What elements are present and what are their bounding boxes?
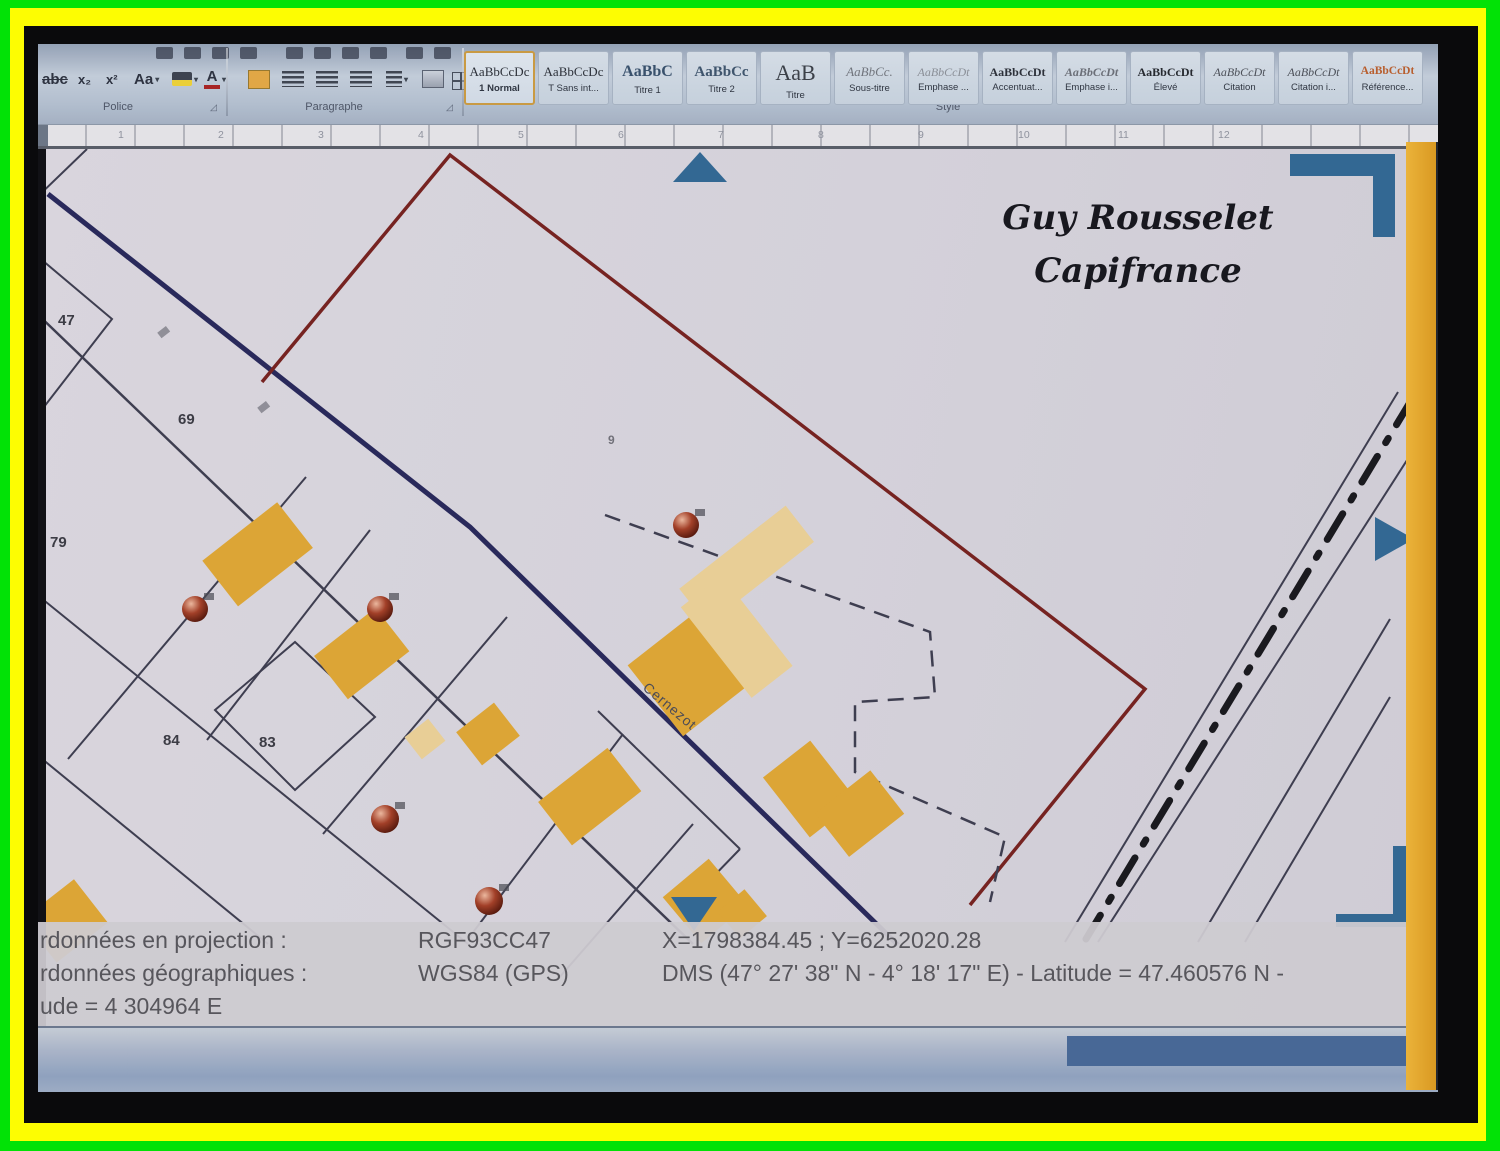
map-pin xyxy=(371,802,405,833)
group-divider xyxy=(226,48,228,116)
building xyxy=(202,502,313,606)
ruler-number: 7 xyxy=(718,129,724,141)
style-chip-eleve[interactable]: AaBbCcDt Élevé xyxy=(1130,51,1201,105)
text-highlight-icon[interactable]: ▾ xyxy=(172,66,198,92)
ruler-number: 4 xyxy=(418,129,424,141)
ruler-number: 11 xyxy=(1118,129,1129,141)
change-case-icon[interactable]: Aa▾ xyxy=(134,66,159,92)
corner-bracket-bottom-right xyxy=(1336,846,1413,927)
map-pin xyxy=(367,593,399,622)
style-chip-titre-1[interactable]: AaBbC Titre 1 xyxy=(612,51,683,105)
line-spacing-icon[interactable]: ▾ xyxy=(386,66,408,92)
style-chip-accentuation[interactable]: AaBbCcDt Accentuat... xyxy=(982,51,1053,105)
align-right-icon[interactable] xyxy=(350,66,372,92)
horizontal-scrollbar-thumb[interactable] xyxy=(1067,1036,1438,1066)
info-xy-coordinates: X=1798384.45 ; Y=6252020.28 xyxy=(662,927,981,954)
ruler-number: 10 xyxy=(1018,129,1030,141)
vertical-scrollbar-orange[interactable] xyxy=(1406,142,1436,1090)
word-ribbon: abc x₂ x² Aa▾ ▾ A▾ ▾ Police ◿ Paragraphe… xyxy=(38,44,1438,124)
toolbar-icon[interactable] xyxy=(156,47,173,59)
style-chip-citation[interactable]: AaBbCcDt Citation xyxy=(1204,51,1275,105)
ruler-number: 5 xyxy=(518,129,524,141)
toolbar-icon[interactable] xyxy=(342,47,359,59)
style-chip-emphase-intense[interactable]: AaBbCcDt Emphase i... xyxy=(1056,51,1127,105)
parcel-number: 47 xyxy=(58,312,75,329)
font-color-icon[interactable]: A▾ xyxy=(204,66,226,92)
toolbar-icon[interactable] xyxy=(286,47,303,59)
building xyxy=(456,703,520,766)
shading-color-icon[interactable] xyxy=(248,66,270,92)
dialog-launcher-paragraphe[interactable]: ◿ xyxy=(446,102,453,113)
style-chip-titre-2[interactable]: AaBbCc Titre 2 xyxy=(686,51,757,105)
group-label-police: Police xyxy=(58,101,178,117)
toolbar-icon[interactable] xyxy=(406,47,423,59)
parcel-number: 9 xyxy=(608,433,615,447)
watermark-name: Guy Rousselet xyxy=(968,192,1308,245)
ruler-number: 2 xyxy=(218,129,224,141)
building-light-small xyxy=(405,719,446,760)
align-center-icon[interactable] xyxy=(316,66,338,92)
ruler-number: 1 xyxy=(118,129,124,141)
style-chip-emphase[interactable]: AaBbCcDt Emphase ... xyxy=(908,51,979,105)
building xyxy=(538,748,641,846)
parcel-number: 69 xyxy=(178,411,195,428)
watermark-brand: Capifrance xyxy=(968,245,1308,298)
horizontal-ruler[interactable]: 1 2 3 4 5 6 7 8 9 10 11 12 xyxy=(38,124,1438,147)
parcel-labels: 47 69 79 84 83 9 xyxy=(50,312,615,751)
subscript-icon[interactable]: x₂ xyxy=(78,66,91,92)
styles-gallery: AaBbCcDc 1 Normal AaBbCcDc T Sans int...… xyxy=(464,51,1428,109)
style-chip-sans-interligne[interactable]: AaBbCcDc T Sans int... xyxy=(538,51,609,105)
info-crs: RGF93CC47 xyxy=(418,927,551,954)
agent-watermark: Guy Rousselet Capifrance xyxy=(968,192,1308,297)
photo-right-edge xyxy=(1436,142,1438,1090)
style-chip-citation-intense[interactable]: AaBbCcDt Citation i... xyxy=(1278,51,1349,105)
toolbar-icon[interactable] xyxy=(434,47,451,59)
toolbar-icon[interactable] xyxy=(314,47,331,59)
map-pin xyxy=(182,593,214,622)
black-matte: abc x₂ x² Aa▾ ▾ A▾ ▾ Police ◿ Paragraphe… xyxy=(24,26,1478,1123)
info-dms-latitude: DMS (47° 27' 38" N - 4° 18' 17" E) - Lat… xyxy=(662,960,1284,987)
align-left-icon[interactable] xyxy=(282,66,304,92)
screen-photo: abc x₂ x² Aa▾ ▾ A▾ ▾ Police ◿ Paragraphe… xyxy=(38,44,1438,1090)
map-pin xyxy=(475,884,509,915)
dialog-launcher-police[interactable]: ◿ xyxy=(210,102,217,113)
ruler-number: 6 xyxy=(618,129,624,141)
info-longitude: ude = 4 304964 E xyxy=(40,993,222,1020)
marker-triangle-up xyxy=(673,152,727,182)
group-label-paragraphe: Paragraphe xyxy=(264,101,404,117)
style-chip-reference[interactable]: AaBbCcDt Référence... xyxy=(1352,51,1423,105)
style-chip-sous-titre[interactable]: AaBbCc. Sous-titre xyxy=(834,51,905,105)
shading-bucket-icon[interactable] xyxy=(422,66,444,92)
info-label: rdonnées géographiques : xyxy=(40,960,307,987)
toolbar-icon[interactable] xyxy=(184,47,201,59)
ruler-number: 9 xyxy=(918,129,924,141)
ruler-margin-stub xyxy=(38,125,48,147)
superscript-icon[interactable]: x² xyxy=(106,66,118,92)
coordinates-info-bar: rdonnées en projection : RGF93CC47 X=179… xyxy=(38,922,1438,1026)
style-chip-normal[interactable]: AaBbCcDc 1 Normal xyxy=(464,51,535,105)
parcel-number: 83 xyxy=(259,734,276,751)
parcel-number: 79 xyxy=(50,534,67,551)
parcel-number: 84 xyxy=(163,732,180,749)
ruler-number: 12 xyxy=(1218,129,1230,141)
road-smudges xyxy=(157,326,270,413)
ruler-number: 8 xyxy=(818,129,824,141)
info-row-geographic: rdonnées géographiques : WGS84 (GPS) DMS… xyxy=(38,955,1438,988)
building xyxy=(314,608,409,699)
style-chip-titre[interactable]: AaB Titre xyxy=(760,51,831,105)
toolbar-icon[interactable] xyxy=(240,47,257,59)
info-row-longitude: ude = 4 304964 E xyxy=(38,988,1438,1021)
ruler-number: 3 xyxy=(318,129,324,141)
framed-screen-photo: { "ribbon": { "groups": [ {"label": "Pol… xyxy=(0,0,1500,1151)
info-datum: WGS84 (GPS) xyxy=(418,960,569,987)
strikethrough-icon[interactable]: abc xyxy=(42,66,68,92)
info-row-projection: rdonnées en projection : RGF93CC47 X=179… xyxy=(38,922,1438,955)
map-pin xyxy=(673,509,705,538)
horizontal-scrollbar-band[interactable] xyxy=(38,1026,1438,1092)
toolbar-icon[interactable] xyxy=(370,47,387,59)
info-label: rdonnées en projection : xyxy=(40,927,287,954)
